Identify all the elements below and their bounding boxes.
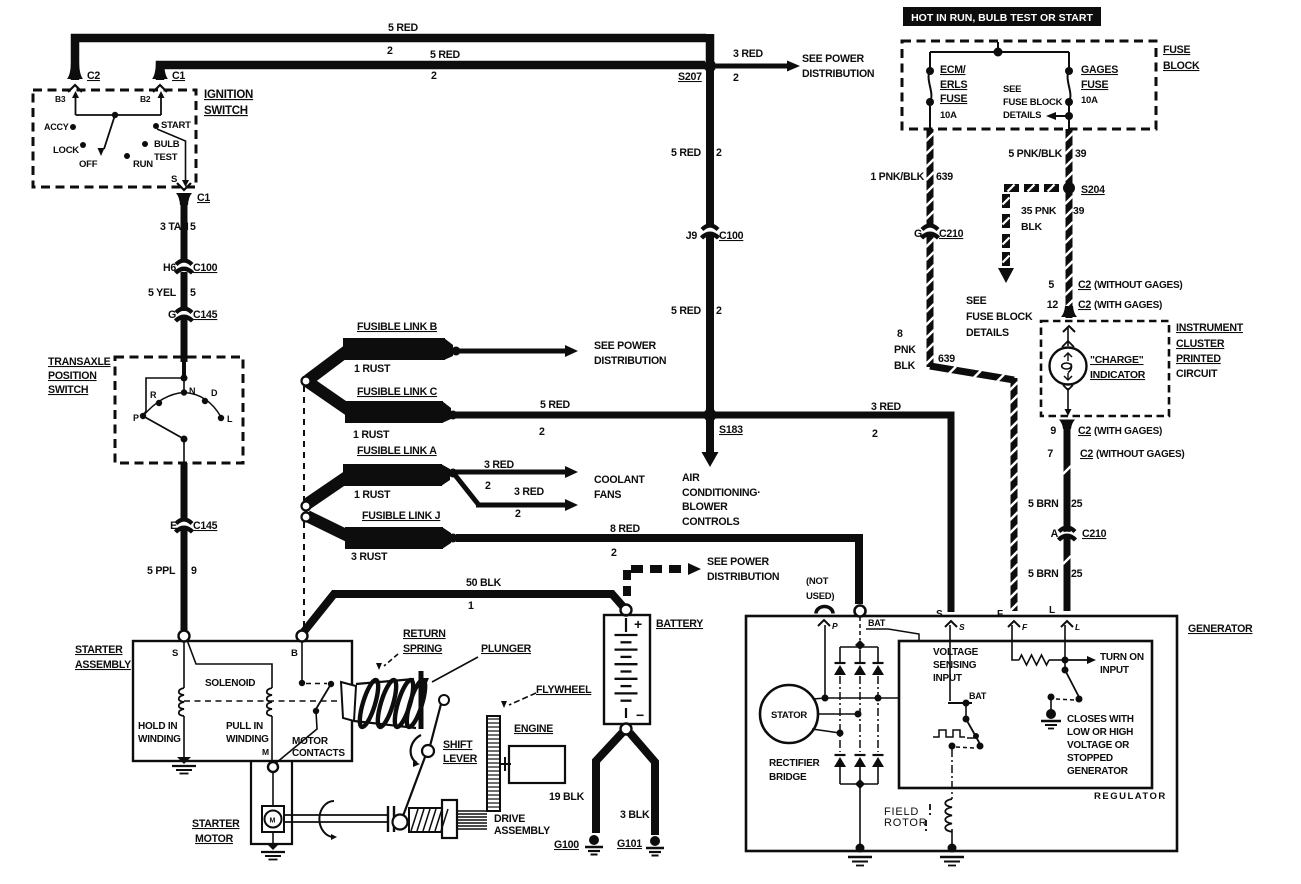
- svg-text:FUSE BLOCK: FUSE BLOCK: [1003, 97, 1063, 108]
- svg-text:CONTACTS: CONTACTS: [292, 748, 345, 759]
- svg-text:L: L: [1049, 605, 1055, 616]
- svg-text:3 BLK: 3 BLK: [620, 809, 650, 821]
- svg-text:ASSEMBLY: ASSEMBLY: [75, 659, 131, 671]
- svg-text:C145: C145: [193, 520, 218, 532]
- svg-text:639: 639: [938, 353, 955, 365]
- svg-text:G: G: [168, 309, 176, 321]
- svg-text:7: 7: [1047, 448, 1053, 460]
- svg-text:AIR: AIR: [682, 472, 700, 484]
- svg-text:C1: C1: [172, 70, 185, 82]
- svg-text:TEST: TEST: [154, 152, 178, 163]
- svg-text:3 RED: 3 RED: [484, 459, 515, 471]
- svg-text:INSTRUMENT: INSTRUMENT: [1176, 322, 1244, 334]
- svg-text:19 BLK: 19 BLK: [549, 791, 585, 803]
- svg-text:SWITCH: SWITCH: [48, 384, 88, 396]
- svg-text:INPUT: INPUT: [1100, 665, 1129, 676]
- svg-text:S207: S207: [678, 71, 702, 83]
- svg-text:5 RED: 5 RED: [540, 399, 571, 411]
- svg-text:F: F: [997, 609, 1003, 620]
- svg-text:BAT: BAT: [969, 691, 987, 701]
- svg-text:INDICATOR: INDICATOR: [1090, 369, 1146, 381]
- svg-text:D: D: [211, 388, 218, 398]
- svg-text:8 RED: 8 RED: [610, 523, 641, 535]
- svg-text:2: 2: [611, 547, 617, 559]
- svg-text:START: START: [161, 120, 191, 131]
- svg-text:DISTRIBUTION: DISTRIBUTION: [802, 68, 874, 80]
- svg-text:3 RED: 3 RED: [733, 48, 764, 60]
- svg-text:GAGES: GAGES: [1081, 64, 1118, 76]
- svg-text:E: E: [170, 520, 177, 532]
- svg-text:GENERATOR: GENERATOR: [1067, 766, 1129, 777]
- svg-text:25: 25: [1071, 498, 1083, 510]
- svg-text:9: 9: [191, 565, 197, 577]
- svg-text:50 BLK: 50 BLK: [466, 577, 502, 589]
- svg-text:3 RUST: 3 RUST: [351, 551, 388, 563]
- svg-text:FUSE: FUSE: [1081, 79, 1108, 91]
- svg-text:"CHARGE": "CHARGE": [1090, 354, 1144, 366]
- svg-text:CLUSTER: CLUSTER: [1176, 338, 1225, 350]
- svg-text:P: P: [832, 621, 838, 631]
- svg-text:LOW OR HIGH: LOW OR HIGH: [1067, 727, 1133, 738]
- svg-text:TURN ON: TURN ON: [1100, 652, 1144, 663]
- svg-text:C145: C145: [193, 309, 218, 321]
- svg-text:3 TAN: 3 TAN: [160, 221, 189, 233]
- svg-text:RUN: RUN: [133, 159, 153, 170]
- svg-text:5 RED: 5 RED: [671, 305, 702, 317]
- svg-text:S: S: [171, 174, 177, 185]
- svg-text:N: N: [189, 386, 195, 396]
- svg-text:VOLTAGE OR: VOLTAGE OR: [1067, 740, 1130, 751]
- svg-text:1: 1: [468, 600, 474, 612]
- svg-text:2: 2: [431, 70, 437, 82]
- svg-text:C100: C100: [193, 262, 218, 274]
- svg-text:ACCY: ACCY: [44, 122, 69, 132]
- svg-text:SPRING: SPRING: [403, 643, 442, 655]
- svg-text:PULL IN: PULL IN: [226, 721, 263, 732]
- svg-text:(NOT: (NOT: [806, 576, 829, 587]
- svg-text:2: 2: [716, 305, 722, 317]
- svg-text:STATOR: STATOR: [771, 710, 807, 721]
- svg-text:FLYWHEEL: FLYWHEEL: [536, 684, 592, 696]
- svg-text:DETAILS: DETAILS: [966, 327, 1009, 339]
- svg-text:2: 2: [539, 426, 545, 438]
- svg-text:G100: G100: [554, 839, 579, 851]
- svg-text:PNK: PNK: [894, 344, 916, 356]
- svg-text:L: L: [227, 414, 233, 424]
- svg-text:M: M: [262, 747, 269, 757]
- svg-text:WINDING: WINDING: [226, 734, 269, 745]
- svg-text:(WITH GAGES): (WITH GAGES): [1094, 300, 1162, 311]
- svg-text:5 BRN: 5 BRN: [1028, 568, 1059, 580]
- svg-text:5: 5: [190, 287, 196, 299]
- svg-text:SEE: SEE: [1003, 84, 1021, 95]
- svg-text:5 RED: 5 RED: [671, 147, 702, 159]
- svg-text:ROTOR: ROTOR: [884, 817, 928, 829]
- svg-text:FUSIBLE LINK A: FUSIBLE LINK A: [357, 445, 437, 457]
- svg-text:BLOCK: BLOCK: [1163, 60, 1200, 72]
- svg-text:S: S: [936, 609, 943, 620]
- svg-text:H6: H6: [163, 262, 176, 274]
- svg-text:RECTIFIER: RECTIFIER: [769, 758, 821, 769]
- svg-text:C1: C1: [197, 192, 210, 204]
- svg-text:INPUT: INPUT: [933, 673, 962, 684]
- svg-text:FUSE: FUSE: [1163, 44, 1190, 56]
- svg-text:BLOWER: BLOWER: [682, 501, 728, 513]
- svg-text:5 YEL: 5 YEL: [148, 287, 177, 299]
- svg-text:G101: G101: [617, 838, 642, 850]
- svg-text:CIRCUIT: CIRCUIT: [1176, 368, 1218, 380]
- svg-text:SEE POWER: SEE POWER: [707, 556, 770, 568]
- svg-text:35 PNK: 35 PNK: [1021, 205, 1057, 217]
- svg-text:FANS: FANS: [594, 489, 621, 501]
- svg-text:10A: 10A: [940, 110, 957, 121]
- svg-text:ENGINE: ENGINE: [514, 723, 553, 735]
- svg-text:HOT IN RUN, BULB TEST OR START: HOT IN RUN, BULB TEST OR START: [911, 12, 1093, 24]
- svg-text:PLUNGER: PLUNGER: [481, 643, 532, 655]
- svg-text:VOLTAGE: VOLTAGE: [933, 647, 979, 658]
- svg-text:DRIVE: DRIVE: [494, 813, 525, 825]
- svg-text:RETURN: RETURN: [403, 628, 446, 640]
- svg-text:J9: J9: [686, 230, 698, 242]
- svg-text:REGULATOR: REGULATOR: [1094, 791, 1167, 802]
- svg-text:25: 25: [1071, 568, 1083, 580]
- svg-text:A: A: [1051, 528, 1059, 540]
- svg-text:SEE POWER: SEE POWER: [594, 340, 657, 352]
- svg-text:PRINTED: PRINTED: [1176, 353, 1221, 365]
- svg-text:DISTRIBUTION: DISTRIBUTION: [707, 571, 779, 583]
- svg-text:C2: C2: [1080, 448, 1093, 460]
- svg-text:STARTER: STARTER: [75, 644, 123, 656]
- svg-text:(WITHOUT GAGES): (WITHOUT GAGES): [1096, 449, 1184, 460]
- svg-text:1 RUST: 1 RUST: [354, 363, 391, 375]
- svg-text:HOLD IN: HOLD IN: [138, 721, 177, 732]
- svg-text:CLOSES WITH: CLOSES WITH: [1067, 714, 1134, 725]
- svg-text:MOTOR: MOTOR: [195, 833, 234, 845]
- svg-text:C210: C210: [939, 228, 964, 240]
- svg-text:C2: C2: [1078, 299, 1091, 311]
- svg-text:−: −: [636, 707, 644, 723]
- svg-text:FUSE: FUSE: [940, 93, 967, 105]
- svg-text:5 RED: 5 RED: [388, 22, 419, 34]
- svg-text:2: 2: [872, 428, 878, 440]
- svg-text:S: S: [959, 622, 965, 632]
- svg-text:(WITHOUT GAGES): (WITHOUT GAGES): [1094, 280, 1182, 291]
- svg-text:IGNITION: IGNITION: [204, 89, 253, 101]
- svg-text:3 RED: 3 RED: [871, 401, 902, 413]
- svg-text:1 RUST: 1 RUST: [354, 489, 391, 501]
- svg-text:SHIFT: SHIFT: [443, 739, 473, 751]
- svg-text:B: B: [291, 648, 298, 659]
- svg-text:+: +: [634, 616, 642, 632]
- svg-text:5: 5: [190, 221, 196, 233]
- svg-text:BATTERY: BATTERY: [656, 618, 703, 630]
- svg-text:MOTOR: MOTOR: [292, 736, 329, 747]
- svg-text:S: S: [172, 648, 178, 659]
- svg-text:9: 9: [1050, 425, 1056, 437]
- svg-text:L: L: [1075, 622, 1080, 632]
- svg-text:R: R: [150, 390, 157, 400]
- svg-text:SENSING: SENSING: [933, 660, 977, 671]
- svg-text:POSITION: POSITION: [48, 370, 97, 382]
- svg-text:C2: C2: [1078, 279, 1091, 291]
- svg-text:LOCK: LOCK: [53, 145, 79, 156]
- svg-text:FUSIBLE LINK C: FUSIBLE LINK C: [357, 386, 438, 398]
- svg-text:SWITCH: SWITCH: [204, 105, 248, 117]
- svg-text:M: M: [270, 818, 276, 825]
- svg-text:12: 12: [1047, 299, 1059, 311]
- svg-text:SEE: SEE: [966, 295, 987, 307]
- svg-text:BRIDGE: BRIDGE: [769, 772, 807, 783]
- svg-text:2: 2: [733, 72, 739, 84]
- svg-text:639: 639: [936, 171, 953, 183]
- svg-text:39: 39: [1073, 205, 1085, 217]
- svg-text:3 RED: 3 RED: [514, 486, 545, 498]
- svg-text:2: 2: [716, 147, 722, 159]
- svg-text:LEVER: LEVER: [443, 753, 478, 765]
- svg-text:CONDITIONING·: CONDITIONING·: [682, 487, 761, 499]
- svg-text:5 PPL: 5 PPL: [147, 565, 176, 577]
- svg-text:39: 39: [1075, 148, 1087, 160]
- svg-text:B3: B3: [55, 94, 66, 104]
- svg-text:STOPPED: STOPPED: [1067, 753, 1113, 764]
- svg-text:DETAILS: DETAILS: [1003, 110, 1041, 121]
- svg-text:WINDING: WINDING: [138, 734, 181, 745]
- svg-text:OFF: OFF: [79, 159, 98, 170]
- svg-text:C2: C2: [1078, 425, 1091, 437]
- svg-text:BULB: BULB: [154, 139, 180, 150]
- svg-text:ERLS: ERLS: [940, 79, 967, 91]
- svg-text:C210: C210: [1082, 528, 1107, 540]
- svg-text:G: G: [914, 228, 922, 240]
- svg-text:SEE POWER: SEE POWER: [802, 53, 865, 65]
- svg-text:ASSEMBLY: ASSEMBLY: [494, 825, 550, 837]
- svg-text:DISTRIBUTION: DISTRIBUTION: [594, 355, 666, 367]
- svg-text:10A: 10A: [1081, 95, 1098, 106]
- svg-text:ECM/: ECM/: [940, 64, 966, 76]
- svg-text:5 PNK/BLK: 5 PNK/BLK: [1008, 148, 1062, 160]
- svg-text:(WITH GAGES): (WITH GAGES): [1094, 426, 1162, 437]
- svg-text:SOLENOID: SOLENOID: [205, 678, 255, 689]
- svg-text:5: 5: [1048, 279, 1054, 291]
- svg-text:GENERATOR: GENERATOR: [1188, 623, 1253, 635]
- svg-text:P: P: [133, 413, 139, 423]
- svg-text:S183: S183: [719, 424, 743, 436]
- svg-text:8: 8: [897, 328, 903, 340]
- svg-text:5 RED: 5 RED: [430, 49, 461, 61]
- svg-text:1 PNK/BLK: 1 PNK/BLK: [870, 171, 924, 183]
- svg-text:STARTER: STARTER: [192, 818, 240, 830]
- svg-text:BLK: BLK: [894, 360, 916, 372]
- svg-text:TRANSAXLE: TRANSAXLE: [48, 356, 111, 368]
- svg-text:5 BRN: 5 BRN: [1028, 498, 1059, 510]
- svg-text:COOLANT: COOLANT: [594, 474, 645, 486]
- svg-text:BLK: BLK: [1021, 221, 1042, 233]
- svg-text:2: 2: [387, 45, 393, 57]
- svg-text:B2: B2: [140, 94, 151, 104]
- svg-text:1 RUST: 1 RUST: [353, 429, 390, 441]
- svg-text:2: 2: [515, 508, 521, 520]
- svg-text:CONTROLS: CONTROLS: [682, 516, 740, 528]
- svg-text:BAT: BAT: [868, 618, 886, 628]
- svg-text:S204: S204: [1081, 184, 1105, 196]
- svg-text:C100: C100: [719, 230, 744, 242]
- svg-text:USED): USED): [806, 591, 834, 602]
- svg-text:FUSIBLE LINK J: FUSIBLE LINK J: [362, 510, 441, 522]
- svg-text:FUSE BLOCK: FUSE BLOCK: [966, 311, 1033, 323]
- svg-text:FUSIBLE LINK B: FUSIBLE LINK B: [357, 321, 438, 333]
- svg-text:C2: C2: [87, 70, 100, 82]
- svg-text:2: 2: [485, 480, 491, 492]
